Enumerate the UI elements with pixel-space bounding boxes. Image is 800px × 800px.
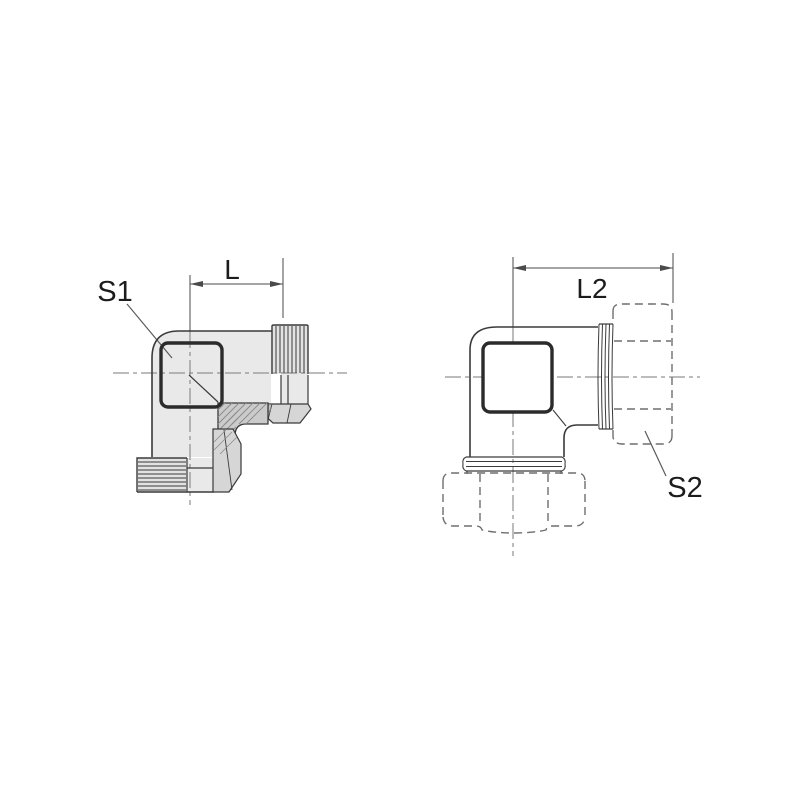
label-dim-l2: L2	[576, 273, 607, 304]
drawing-canvas: L S1	[0, 0, 800, 800]
label-s2: S2	[667, 472, 702, 504]
dim-l-arrow-right	[270, 281, 283, 287]
left-view: L S1	[97, 254, 347, 505]
left-bottom-stud-cone	[213, 429, 241, 492]
right-phantom-nut	[613, 304, 672, 444]
right-bottom-thread-band	[463, 457, 565, 474]
right-view: L2	[443, 253, 703, 556]
dim-l2-arrow-right	[660, 265, 673, 271]
right-bore-edge-diagonal	[553, 410, 566, 426]
s2-leader-line	[645, 431, 666, 476]
s1-leader-line	[127, 304, 172, 358]
label-s1: S1	[97, 276, 132, 308]
dim-l2-arrow-left	[513, 265, 526, 271]
left-right-stud-cone	[262, 404, 311, 423]
label-dim-l: L	[224, 254, 240, 285]
bottom-phantom-nut	[443, 473, 585, 533]
dim-l-arrow-left	[190, 281, 203, 287]
technical-drawing: L S1	[0, 0, 800, 800]
right-wrench-square	[483, 343, 552, 412]
